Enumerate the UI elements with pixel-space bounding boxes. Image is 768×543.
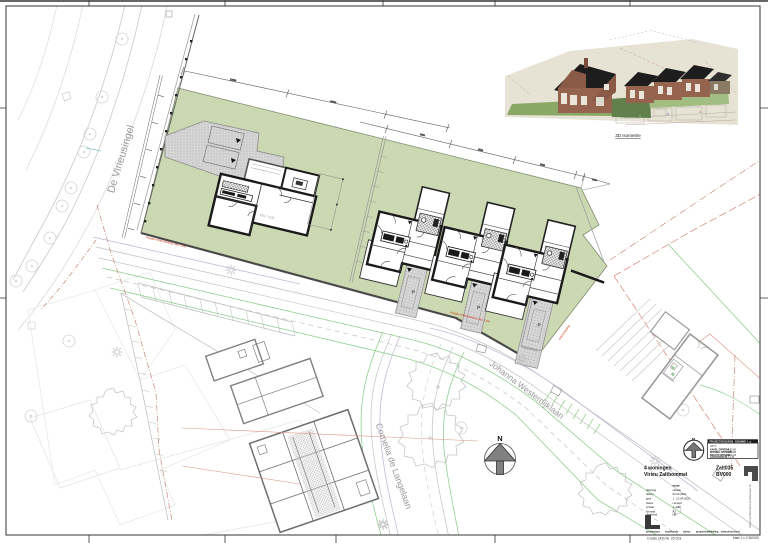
- svg-text:projectontwikkeling: projectontwikkeling: [696, 531, 719, 534]
- svg-text:4 woningen: 4 woningen: [644, 465, 672, 471]
- svg-text:HB: HB: [673, 512, 677, 516]
- svg-text:maat: maat: [673, 483, 680, 487]
- svg-text:tekening: tekening: [646, 488, 657, 492]
- svg-text:1 : 21-04-2022: 1 : 21-04-2022: [673, 497, 691, 501]
- svg-text:3D Isometrie: 3D Isometrie: [615, 133, 641, 138]
- svg-text:gew.: gew.: [646, 498, 652, 501]
- svg-text:datum: datum: [646, 492, 654, 496]
- svg-text:architectuur: architectuur: [646, 531, 660, 534]
- svg-text:02-03-2022: 02-03-2022: [673, 492, 687, 496]
- svg-text:concept: concept: [673, 501, 683, 505]
- svg-text:Virieu en Bommel architectuur: Virieu en Bommel architectuur bv: [748, 483, 752, 528]
- svg-text:advies: advies: [683, 531, 691, 534]
- svg-text:Virieu Zaltbommel: Virieu Zaltbommel: [644, 472, 688, 478]
- svg-text:N: N: [497, 434, 502, 443]
- svg-text:BV000: BV000: [716, 472, 732, 478]
- svg-text:bouwkunde: bouwkunde: [665, 531, 679, 534]
- svg-text:status: status: [646, 501, 654, 505]
- svg-text:3.2 M: 3.2 M: [728, 456, 734, 459]
- svg-text:LOT 1: LOT 1: [710, 445, 717, 448]
- svg-text:Zalt035: Zalt035: [716, 465, 733, 471]
- svg-text:GOOTHOOGTE: GOOTHOOGTE: [710, 456, 728, 459]
- svg-text:blad 1 v 2 BV000: blad 1 v 2 BV000: [733, 536, 759, 540]
- svg-text:schaal: schaal: [646, 505, 654, 509]
- svg-text:situatie: situatie: [673, 488, 682, 492]
- svg-text:www.virieu-bv.nl: www.virieu-bv.nl: [721, 531, 740, 534]
- svg-text:Creato (A3) Nr. 20-013: Creato (A3) Nr. 20-013: [647, 537, 681, 541]
